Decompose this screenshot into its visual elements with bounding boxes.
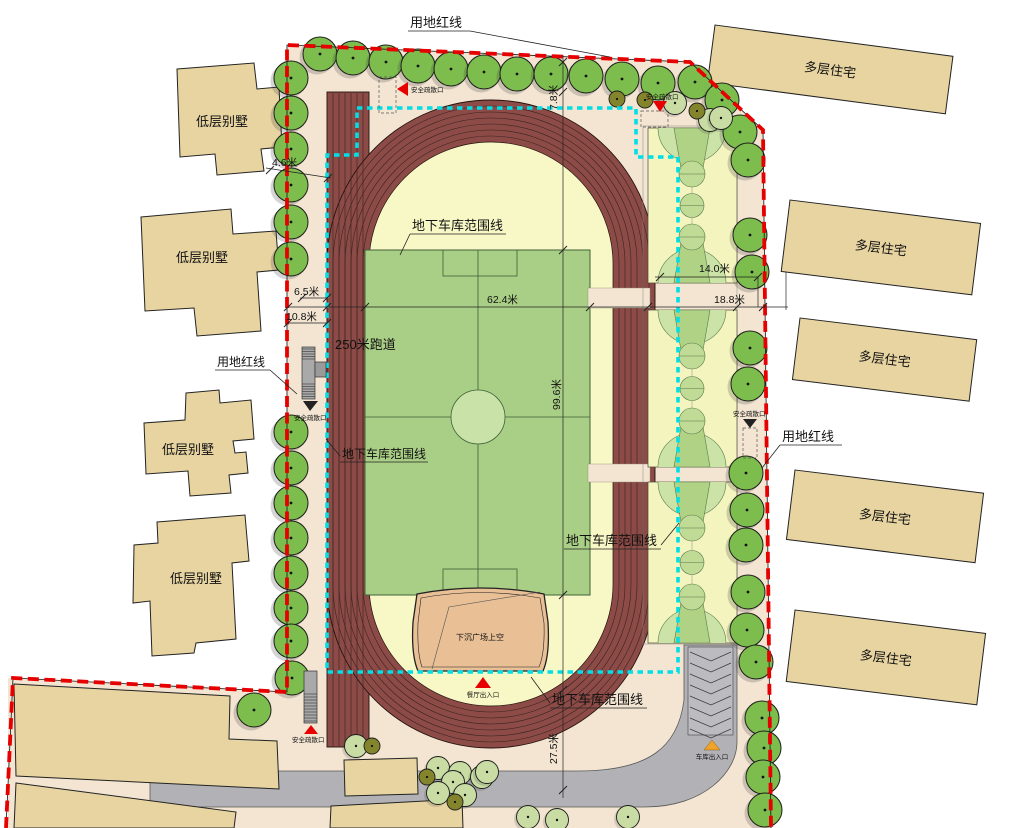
tree-center — [621, 78, 624, 81]
villa-labels: 低层别墅 低层别墅 低层别墅 低层别墅 — [162, 114, 248, 586]
tree-center — [527, 816, 529, 818]
basketball-court-3 — [648, 482, 737, 643]
basketball-court-1 — [648, 128, 737, 283]
plaza-label: 下沉广场上空 — [456, 632, 504, 642]
tree-center — [761, 717, 764, 720]
tree-icon — [364, 738, 380, 754]
dim-18-8: 18.8米 — [714, 293, 745, 306]
dim-7-8: 7.8米 — [547, 84, 560, 110]
boundary-label-left: 用地红线 — [217, 354, 265, 369]
tree-center — [616, 98, 618, 100]
center-circle — [451, 390, 505, 444]
tree-center — [290, 537, 293, 540]
villa-label-3: 低层别墅 — [162, 442, 214, 457]
villa-label-2: 低层别墅 — [176, 250, 228, 265]
building-villa-2 — [141, 209, 279, 336]
tree-center — [585, 75, 588, 78]
garage-line-label-right: 地下车库范围线 — [566, 533, 657, 548]
dim-62-4: 62.4米 — [487, 293, 518, 306]
tree-icon — [419, 769, 435, 785]
tree-center — [290, 640, 293, 643]
dim-4-6: 4.6米 — [272, 156, 298, 169]
tree-center — [747, 383, 750, 386]
tree-center — [745, 472, 748, 475]
tree-center — [739, 131, 742, 134]
tree-center — [437, 792, 439, 794]
tree-center — [417, 65, 420, 68]
basketball-court-2 — [648, 310, 737, 467]
tree-icon — [609, 91, 625, 107]
tree-center — [550, 73, 553, 76]
tree-center — [627, 816, 629, 818]
evac-label-top-left: 安全疏散口 — [411, 85, 444, 94]
dim-14-0: 14.0米 — [699, 262, 730, 275]
tree-center — [291, 677, 294, 680]
tree-center — [745, 544, 748, 547]
villa-label-1: 低层别墅 — [196, 114, 248, 129]
garage-ramp — [688, 647, 733, 735]
tree-center — [746, 509, 749, 512]
tree-center — [355, 745, 357, 747]
tree-center — [755, 661, 758, 664]
tree-center — [556, 819, 558, 821]
tree-center — [747, 159, 750, 162]
tree-center — [290, 431, 293, 434]
plaza-building: 下沉广场上空 — [413, 588, 549, 671]
site-plan: 下沉广场上空 多层住宅 多层住宅 多层住宅 多层住宅 多层住宅 — [0, 0, 1036, 828]
tree-icon — [447, 794, 463, 810]
tree-canopy — [546, 809, 569, 828]
tree-center — [290, 467, 293, 470]
tree-center — [253, 709, 256, 712]
tree-center — [437, 767, 439, 769]
tree-center — [385, 61, 388, 64]
walkway-crossing-1 — [588, 288, 650, 308]
tree-center — [290, 148, 293, 151]
tree-center — [290, 184, 293, 187]
tree-center — [290, 77, 293, 80]
tree-center — [657, 82, 660, 85]
tree-center — [749, 234, 752, 237]
tree-center — [764, 809, 767, 812]
evac-label-right-middle: 安全疏散口 — [733, 409, 766, 418]
tree-center — [450, 68, 453, 71]
site-plan-canvas: 下沉广场上空 多层住宅 多层住宅 多层住宅 多层住宅 多层住宅 — [0, 0, 1036, 828]
tree-center — [751, 271, 754, 274]
tree-icon — [689, 103, 705, 119]
tree-center — [696, 110, 698, 112]
tree-center — [721, 99, 724, 102]
tree-center — [352, 57, 355, 60]
plaza-outline — [413, 588, 549, 671]
tree-center — [464, 794, 466, 796]
building-apartment-3: 多层住宅 — [786, 470, 983, 563]
villa-label-4: 低层别墅 — [170, 571, 222, 586]
garage-line-label-left: 地下车库范围线 — [342, 446, 426, 461]
tree-center — [452, 781, 454, 783]
tree-center — [483, 71, 486, 74]
garage-entrance-label: 车库出入口 — [696, 752, 729, 761]
building-apartment-1: 多层住宅 — [781, 200, 980, 295]
building-apartment-top: 多层住宅 — [707, 25, 953, 114]
building-apartment-4: 多层住宅 — [786, 610, 985, 705]
garage-line-label-top: 地下车库范围线 — [412, 218, 503, 233]
tree-center — [319, 53, 322, 56]
dim-27-5: 27.5米 — [547, 733, 560, 764]
dim-99-6: 99.6米 — [550, 379, 563, 410]
tree-center — [746, 629, 749, 632]
dim-6-5: 6.5米 — [294, 285, 320, 298]
building-apartment-2: 多层住宅 — [792, 318, 976, 401]
soccer-field — [365, 250, 590, 595]
tree-center — [290, 502, 293, 505]
tree-center — [290, 607, 293, 610]
boundary-label-right: 用地红线 — [782, 429, 834, 444]
tree-center — [674, 102, 676, 104]
evac-label-bottom-left: 安全疏散口 — [292, 735, 325, 744]
tree-center — [749, 347, 752, 350]
track-label: 250米跑道 — [335, 337, 396, 352]
tree-center — [290, 112, 293, 115]
basketball-courts — [643, 126, 737, 644]
dim-10-8: 10.8米 — [286, 310, 317, 323]
tree-center — [290, 258, 293, 261]
tree-center — [290, 221, 293, 224]
tree-center — [762, 776, 765, 779]
tree-center — [516, 73, 519, 76]
evac-label-left-middle: 安全疏散口 — [294, 413, 327, 422]
tree-center — [454, 801, 456, 803]
building-small-1 — [344, 758, 418, 796]
tree-center — [763, 747, 766, 750]
tree-center — [720, 117, 722, 119]
tree-center — [747, 591, 750, 594]
tree-center — [694, 81, 697, 84]
boundary-label-top: 用地红线 — [410, 15, 462, 30]
walkway-crossing-2 — [588, 464, 650, 482]
tree-center — [486, 771, 488, 773]
restaurant-entrance-label: 餐厅出入口 — [467, 690, 500, 699]
evac-label-top-right: 安全疏散口 — [646, 92, 679, 101]
tree-center — [426, 776, 428, 778]
tree-center — [371, 745, 373, 747]
garage-line-label-bottom: 地下车库范围线 — [552, 692, 643, 707]
tree-center — [290, 572, 293, 575]
